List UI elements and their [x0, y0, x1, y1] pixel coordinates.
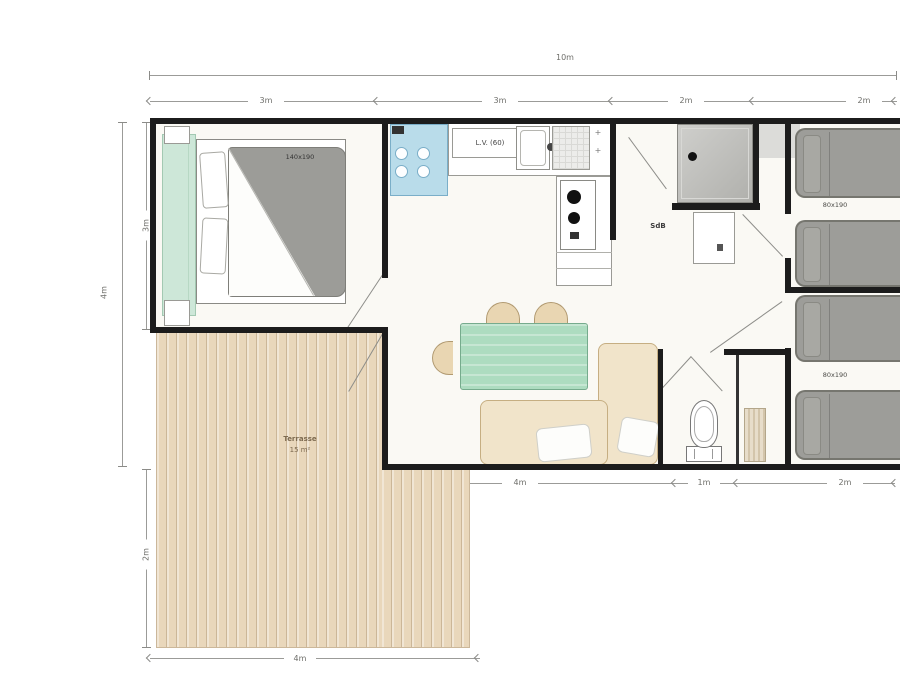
single-bed	[795, 220, 900, 287]
oven-knob-icon	[567, 190, 581, 204]
burner-icon	[417, 165, 430, 178]
wall-between-bedrooms	[785, 287, 900, 293]
exterior-wall-left	[150, 118, 156, 333]
bed-pillow	[803, 302, 821, 357]
wardrobe	[162, 134, 196, 316]
dim-line-top-total	[150, 75, 897, 76]
twin-bed-size-label: 80x190	[810, 371, 860, 380]
wall-kitchen-right	[610, 118, 616, 240]
bed-pillow	[803, 227, 821, 282]
dim-tick	[474, 654, 482, 662]
shower-drain-icon	[688, 152, 697, 161]
dim-tick	[146, 97, 154, 105]
wall-wc-top	[724, 349, 785, 355]
cabinet-shelf-line	[556, 268, 612, 269]
draining-board	[552, 126, 590, 170]
dim-label-left-terrace: 2m	[141, 540, 152, 570]
bathroom-cabinet	[693, 212, 735, 264]
bed-pillow	[803, 135, 821, 193]
shower-inner-frame	[681, 128, 749, 199]
dim-tick	[118, 466, 127, 467]
burner-icon	[395, 147, 408, 160]
plus-mark: +	[592, 146, 604, 155]
oven-handle	[570, 232, 579, 239]
pillow	[199, 151, 229, 209]
nightstand-bottom	[164, 300, 190, 326]
wall-bedroom-right	[382, 118, 388, 278]
bed-seam-line	[829, 394, 830, 458]
dim-tick	[891, 97, 899, 105]
oven-knob-icon	[568, 212, 580, 224]
sink-bowl	[520, 130, 546, 166]
toilet-tank-line	[694, 449, 695, 459]
wc-shelf-unit	[744, 408, 766, 462]
burner-icon	[417, 147, 430, 160]
dim-tick	[142, 647, 151, 648]
wall-shower-bottom	[672, 203, 760, 210]
burner-icon	[395, 165, 408, 178]
dim-tick	[608, 97, 616, 105]
dim-tick	[671, 479, 679, 487]
wall-shower-right	[753, 118, 759, 210]
dim-label-seg-2: 3m	[482, 95, 518, 106]
dim-label-bottom-2: 1m	[688, 477, 720, 488]
dim-tick	[733, 479, 741, 487]
dim-tick	[891, 479, 899, 487]
dim-tick	[749, 97, 757, 105]
terrace-deck	[156, 333, 382, 648]
dim-label-total-length: 10m	[540, 52, 590, 63]
wall-bedrooms-vertical-3	[785, 348, 791, 464]
bed-seam-line	[829, 132, 830, 196]
cabinet-tap-icon	[717, 244, 723, 251]
terrace-deck-right	[382, 470, 470, 648]
dim-label-seg-3: 2m	[668, 95, 704, 106]
bed-seam-line	[829, 299, 830, 360]
single-bed	[795, 295, 900, 362]
exterior-wall-bottom	[382, 464, 900, 470]
pillow	[200, 217, 229, 274]
cooktop-unit	[390, 124, 448, 196]
dim-label-bottom-3: 2m	[827, 477, 863, 488]
wall-bedrooms-vertical-1	[785, 118, 791, 214]
single-bed	[795, 128, 900, 198]
dim-tick	[896, 71, 897, 80]
bathroom-label: SdB	[642, 222, 674, 231]
toilet-tank	[686, 446, 722, 462]
sofa-cushion	[616, 416, 660, 458]
bed-seam-line	[829, 224, 830, 285]
dim-tick	[118, 122, 127, 123]
dim-label-left-outer: 4m	[99, 278, 110, 308]
terrace-name-label: Terrasse	[268, 435, 332, 444]
single-bed	[795, 390, 900, 460]
wall-bedroom-bottom	[150, 327, 388, 333]
bed-pillow	[803, 397, 821, 455]
master-bed-size-label: 140x190	[272, 153, 328, 162]
wc-partition-wall	[736, 355, 739, 464]
toilet-seat	[694, 406, 714, 442]
toilet-tank-line	[712, 449, 713, 459]
plus-mark: +	[592, 128, 604, 137]
dim-label-seg-4: 2m	[846, 95, 882, 106]
dim-label-bottom-1: 4m	[502, 477, 538, 488]
dim-tick	[373, 97, 381, 105]
dim-tick	[149, 71, 150, 80]
wardrobe-door-line	[188, 136, 189, 314]
wall-wc-left	[658, 349, 663, 464]
floorplan-canvas: 10m 3m 3m 2m 2m 4m 3m 2m 4m 1m 2m 4m Ter…	[0, 0, 900, 675]
twin-bed-size-label: 80x190	[810, 201, 860, 210]
cabinet-shelf-line	[556, 252, 612, 253]
wall-living-left	[382, 327, 388, 470]
dim-label-terrace-width: 4m	[284, 653, 316, 664]
nightstand-top	[164, 126, 190, 144]
cooktop-control-panel	[392, 126, 404, 134]
terrace-area-label: 15 m²	[268, 446, 332, 455]
dim-label-seg-1: 3m	[248, 95, 284, 106]
bathroom-closet	[757, 122, 800, 158]
dim-tick	[146, 654, 154, 662]
dim-line-left-outer	[122, 123, 123, 467]
sofa-cushion	[535, 423, 592, 462]
dining-table	[460, 323, 588, 390]
dim-tick	[142, 469, 151, 470]
